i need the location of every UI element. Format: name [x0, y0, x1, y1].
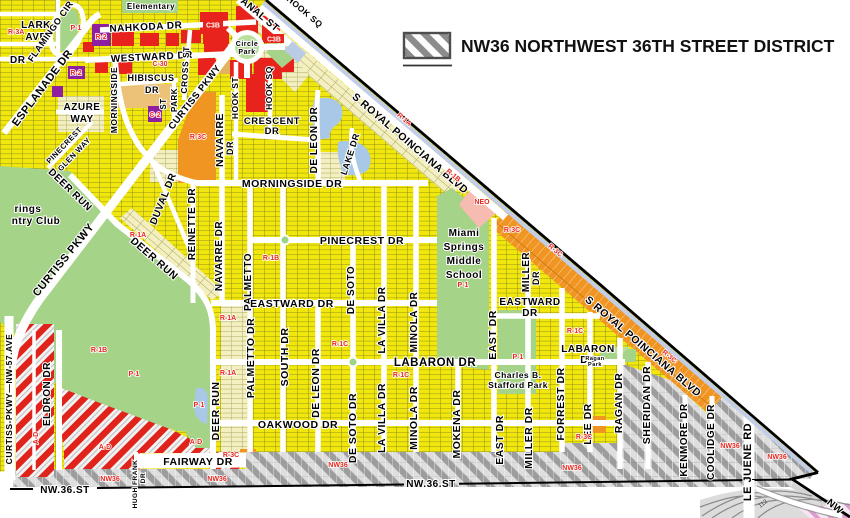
svg-text:ST: ST [159, 98, 168, 109]
svg-text:HIBISCUS: HIBISCUS [127, 73, 174, 83]
svg-text:A-D: A-D [33, 432, 40, 444]
svg-text:C3B: C3B [206, 23, 220, 30]
svg-text:Charles B.: Charles B. [494, 370, 541, 380]
svg-text:Circle: Circle [236, 41, 258, 48]
svg-text:MINOLA DR: MINOLA DR [409, 291, 420, 352]
svg-text:SHERIDAN DR: SHERIDAN DR [641, 366, 653, 444]
svg-text:R-3A: R-3A [8, 29, 24, 36]
svg-text:R-1A: R-1A [220, 315, 236, 322]
svg-text:EASTWARD: EASTWARD [499, 297, 560, 308]
svg-text:R-1C: R-1C [567, 328, 583, 335]
svg-text:MINOLA DR: MINOLA DR [408, 386, 420, 450]
svg-text:AZURE: AZURE [64, 102, 101, 113]
svg-text:C3B: C3B [267, 37, 281, 44]
svg-text:P-1: P-1 [458, 282, 469, 289]
svg-text:R-1C: R-1C [393, 372, 409, 379]
svg-text:R-1B: R-1B [91, 347, 107, 354]
svg-text:EASTWARD DR: EASTWARD DR [250, 298, 334, 310]
svg-text:NW36: NW36 [328, 462, 348, 469]
svg-text:DR: DR [522, 308, 538, 319]
svg-text:MORNINGSIDE DR: MORNINGSIDE DR [242, 178, 342, 190]
svg-text:CURTISS-PKWY—NW-57.AVE: CURTISS-PKWY—NW-57.AVE [4, 334, 14, 465]
svg-text:P-1: P-1 [129, 371, 140, 378]
svg-text:R-3C: R-3C [190, 134, 206, 141]
svg-text:NEO: NEO [474, 199, 490, 206]
svg-text:NW36: NW36 [562, 465, 582, 472]
svg-text:NW36: NW36 [767, 454, 787, 461]
svg-text:COOLIDGE DR: COOLIDGE DR [706, 404, 717, 480]
svg-text:SOUTH DR: SOUTH DR [279, 328, 291, 387]
svg-text:R-1B: R-1B [263, 255, 279, 262]
svg-text:PINECREST DR: PINECREST DR [320, 235, 404, 247]
svg-text:DR: DR [145, 85, 159, 95]
svg-text:Middle: Middle [447, 256, 482, 267]
svg-text:EAST DR: EAST DR [487, 310, 499, 360]
svg-text:LABARON DR: LABARON DR [394, 357, 476, 369]
svg-text:DE SOTO DR: DE SOTO DR [347, 393, 359, 463]
svg-text:NW.36.ST: NW.36.ST [40, 485, 90, 496]
svg-text:PARK: PARK [170, 88, 179, 112]
svg-text:MILLER DR: MILLER DR [523, 407, 535, 469]
svg-text:NW.36.ST: NW.36.ST [406, 479, 456, 490]
svg-text:DR: DR [10, 55, 26, 66]
svg-text:Miami: Miami [449, 228, 480, 239]
svg-text:Park: Park [588, 362, 602, 368]
svg-text:rings: rings [15, 204, 42, 215]
svg-text:Springs: Springs [444, 242, 485, 253]
svg-text:HUGH FRANK: HUGH FRANK [132, 460, 139, 509]
svg-text:DR: DR [140, 473, 147, 483]
svg-text:DE LEON DR: DE LEON DR [310, 348, 322, 418]
svg-text:LA VILLA DR: LA VILLA DR [376, 383, 388, 453]
svg-text:P-1: P-1 [71, 25, 82, 32]
svg-text:A-D: A-D [190, 439, 202, 446]
svg-text:R-3C: R-3C [576, 434, 592, 441]
svg-text:DR: DR [265, 126, 280, 137]
svg-text:WAY: WAY [70, 114, 93, 125]
svg-text:Elementary: Elementary [127, 2, 175, 11]
svg-text:NW36: NW36 [207, 476, 227, 483]
svg-text:DEER RUN: DEER RUN [210, 382, 222, 441]
svg-text:RAGAN DR: RAGAN DR [613, 373, 625, 434]
svg-text:PALMETTO DR: PALMETTO DR [245, 318, 257, 398]
svg-text:MORNINGSIDE: MORNINGSIDE [109, 67, 119, 133]
svg-text:School: School [446, 270, 482, 281]
svg-text:Park: Park [238, 49, 255, 56]
svg-text:NW36: NW36 [720, 443, 740, 450]
svg-text:P-1: P-1 [194, 402, 205, 409]
svg-text:P-1: P-1 [513, 354, 524, 361]
svg-text:R-1A: R-1A [130, 232, 146, 239]
svg-text:R-2: R-2 [95, 34, 106, 41]
svg-text:LE JUENE RD: LE JUENE RD [742, 423, 754, 501]
svg-text:ntry Club: ntry Club [12, 216, 60, 227]
svg-text:R-3C: R-3C [223, 452, 239, 459]
svg-text:LA VILLA DR: LA VILLA DR [377, 286, 388, 353]
svg-text:KENMORE DR: KENMORE DR [679, 403, 690, 477]
svg-text:MOKENA DR: MOKENA DR [451, 390, 463, 459]
svg-text:ELDRON DR: ELDRON DR [42, 362, 53, 426]
svg-text:Stafford Park: Stafford Park [488, 380, 548, 390]
svg-text:NAVARRE DR: NAVARRE DR [214, 221, 225, 291]
svg-text:DR: DR [225, 141, 235, 155]
svg-text:R-2: R-2 [70, 70, 81, 77]
svg-text:R-1C: R-1C [332, 341, 348, 348]
svg-text:DE LEON DR: DE LEON DR [309, 106, 320, 173]
svg-text:NW36: NW36 [100, 476, 120, 483]
svg-text:HOOK ST: HOOK ST [230, 77, 240, 120]
svg-text:R-1A: R-1A [220, 370, 236, 377]
svg-text:C-2: C-2 [149, 112, 160, 119]
svg-text:DE SOTO: DE SOTO [346, 266, 357, 314]
svg-text:FORREST DR: FORREST DR [555, 367, 567, 440]
svg-text:LABARON: LABARON [561, 344, 615, 355]
svg-text:HOOK SQ: HOOK SQ [264, 66, 274, 110]
svg-text:NW36 NORTHWEST 36TH STREET DIS: NW36 NORTHWEST 36TH STREET DISTRICT [461, 36, 835, 56]
svg-text:EAST DR: EAST DR [494, 415, 506, 465]
svg-text:REINETTE DR: REINETTE DR [187, 188, 198, 260]
svg-text:A-D: A-D [99, 444, 111, 451]
svg-text:NAVARRE: NAVARRE [214, 113, 226, 167]
svg-text:C-30: C-30 [152, 61, 167, 68]
svg-text:OAKWOOD DR: OAKWOOD DR [258, 419, 338, 431]
svg-text:DR: DR [531, 271, 541, 285]
svg-text:R-3C: R-3C [504, 227, 520, 234]
